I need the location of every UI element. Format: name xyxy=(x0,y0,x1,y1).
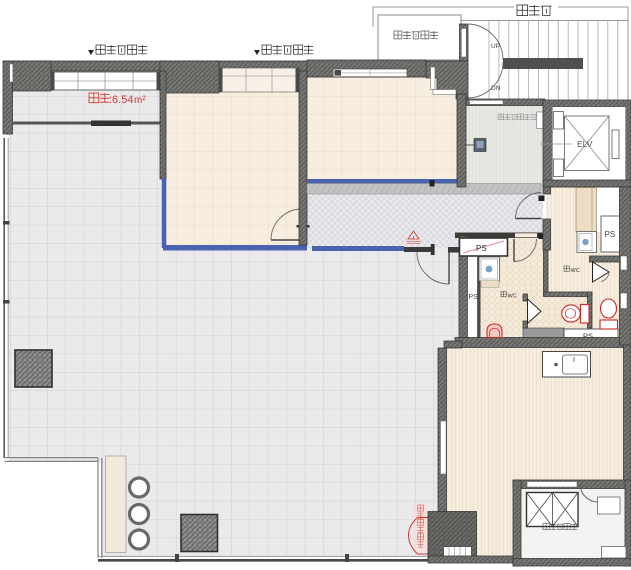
svg-text:PS: PS xyxy=(605,230,616,239)
svg-text:m²: m² xyxy=(134,95,146,106)
svg-text::6.54: :6.54 xyxy=(109,94,133,106)
svg-text:ELV: ELV xyxy=(577,139,593,149)
svg-text:WC: WC xyxy=(571,268,580,274)
svg-text:WC: WC xyxy=(508,294,517,300)
svg-text:UP: UP xyxy=(491,43,500,50)
svg-text:PS: PS xyxy=(476,244,487,253)
svg-text:DN: DN xyxy=(491,85,501,92)
svg-text:PS: PS xyxy=(469,294,479,301)
